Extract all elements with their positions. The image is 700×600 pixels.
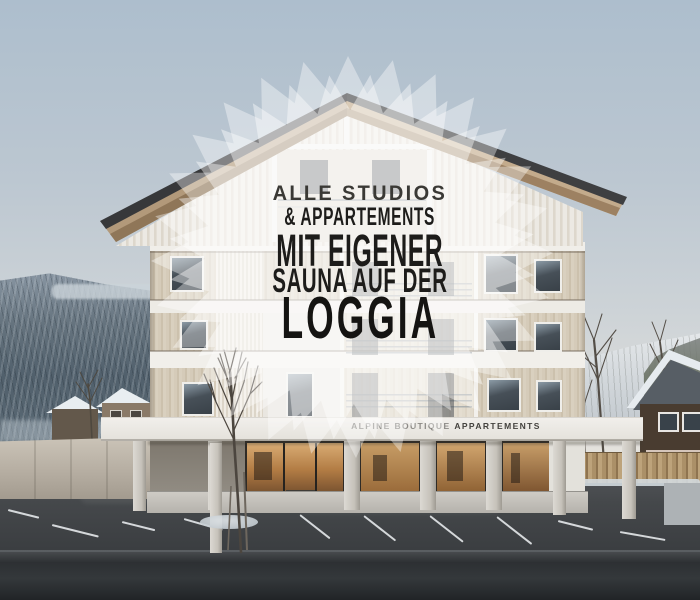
hero-photo: ALPINE BOUTIQUE APPARTEMENTS ALLE STUDIO… [0,0,700,600]
headline-line-5: LOGGIA [190,289,530,348]
headline-line-1: ALLE STUDIOS [190,183,530,205]
